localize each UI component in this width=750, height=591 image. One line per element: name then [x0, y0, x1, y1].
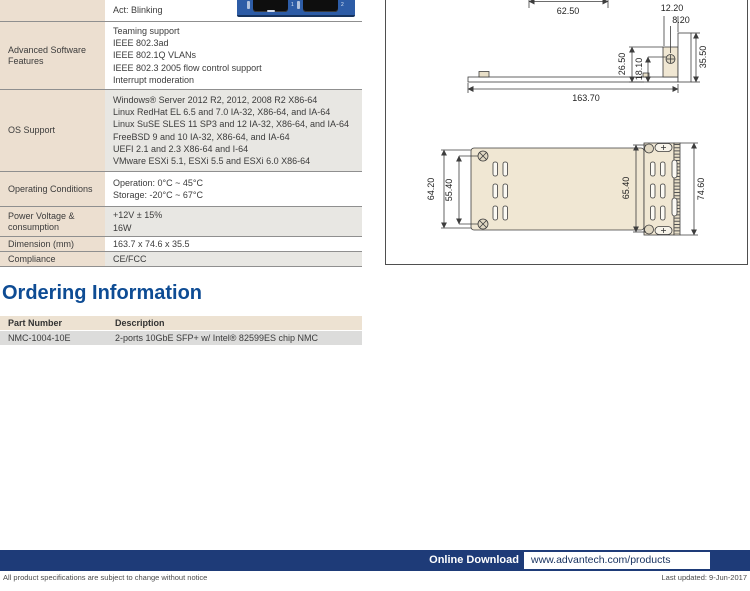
spec-line: VMware ESXi 5.1, ESXi 5.5 and ESXi 6.0 X…	[113, 155, 358, 167]
spec-line: IEEE 802.3ad	[113, 37, 358, 49]
metal-glint	[267, 10, 275, 12]
dimension-drawing-panel: 62.50 12.20 8.20 26.50 18.10 35.50 163.7…	[385, 0, 748, 265]
product-photo-sfp-faceplate: 1 2	[237, 0, 355, 17]
dim-35-50: 35.50	[698, 46, 708, 69]
spec-label-compliance: Compliance	[0, 252, 105, 266]
spec-line: IEEE 802.1Q VLANs	[113, 49, 358, 61]
table-row: Advanced Software Features Teaming suppo…	[0, 22, 362, 90]
dim-18-10: 18.10	[634, 58, 644, 81]
spec-line: Teaming support	[113, 25, 358, 37]
dim-55-40: 55.40	[444, 179, 454, 202]
spec-label-advanced-software: Advanced Software Features	[0, 22, 105, 89]
table-row: NMC-1004-10E 2-ports 10GbE SFP+ w/ Intel…	[0, 331, 362, 345]
dim-64-20: 64.20	[426, 178, 436, 201]
disclaimer-text: All product specifications are subject t…	[3, 573, 207, 582]
spec-value-os-support: Windows® Server 2012 R2, 2012, 2008 R2 X…	[105, 90, 362, 171]
dim-12-20: 12.20	[661, 3, 684, 13]
spec-label-operating-conditions: Operating Conditions	[0, 172, 105, 206]
spec-value-dimension: 163.7 x 74.6 x 35.5	[105, 237, 362, 251]
spec-value-advanced-software: Teaming support IEEE 802.3ad IEEE 802.1Q…	[105, 22, 362, 89]
spec-value-power: +12V ± 15% 16W	[105, 207, 362, 236]
mechanical-drawings: 62.50 12.20 8.20 26.50 18.10 35.50 163.7…	[386, 0, 746, 262]
ordering-information-heading: Ordering Information	[2, 282, 202, 305]
dim-62-50: 62.50	[557, 6, 580, 16]
table-row: Compliance CE/FCC	[0, 252, 362, 267]
table-row: Dimension (mm) 163.7 x 74.6 x 35.5	[0, 237, 362, 252]
spec-line: UEFI 2.1 and 2.3 X86-64 and I-64	[113, 143, 358, 155]
spec-label-dimension: Dimension (mm)	[0, 237, 105, 251]
table-row: Operating Conditions Operation: 0°C ~ 45…	[0, 172, 362, 207]
spec-label-power: Power Voltage & consumption	[0, 207, 105, 236]
table-row: OS Support Windows® Server 2012 R2, 2012…	[0, 90, 362, 172]
spec-line: Storage: -20°C ~ 67°C	[113, 189, 358, 201]
download-url-link[interactable]: www.advantech.com/products	[524, 552, 710, 569]
spec-line: Linux SuSE SLES 11 SP3 and 12 IA-32, X86…	[113, 118, 358, 130]
description-cell: 2-ports 10GbE SFP+ w/ Intel® 82599ES chi…	[110, 333, 362, 343]
sfp-cage-2	[303, 0, 338, 12]
dim-65-40: 65.40	[621, 177, 631, 200]
footer-bar: Online Download www.advantech.com/produc…	[0, 550, 750, 571]
spec-line: FreeBSD 9 and 10 IA-32, X86-64, and IA-6…	[113, 131, 358, 143]
spec-line: +12V ± 15%	[113, 209, 358, 221]
spec-line: Interrupt moderation	[113, 74, 358, 86]
column-header-description: Description	[110, 318, 362, 328]
spec-line: IEEE 802.3 2005 flow control support	[113, 62, 358, 74]
spec-line: 16W	[113, 222, 358, 234]
side-view-drawing	[468, 0, 700, 93]
top-view-drawing	[441, 143, 698, 235]
spec-value-compliance: CE/FCC	[105, 252, 362, 266]
dim-163-70: 163.70	[572, 93, 600, 103]
ordering-table-header: Part Number Description	[0, 316, 362, 331]
spec-line: Windows® Server 2012 R2, 2012, 2008 R2 X…	[113, 94, 358, 106]
port-label-sticker	[247, 1, 250, 9]
port-number-1: 1	[291, 2, 294, 8]
spec-label-led	[0, 0, 105, 21]
specification-table: Act: Blinking Advanced Software Features…	[0, 0, 362, 267]
port-number-2: 2	[341, 2, 344, 8]
column-header-part-number: Part Number	[0, 318, 110, 328]
spec-label-os-support: OS Support	[0, 90, 105, 171]
online-download-label: Online Download	[429, 550, 519, 571]
part-number-cell: NMC-1004-10E	[0, 333, 110, 343]
spec-value-operating-conditions: Operation: 0°C ~ 45°C Storage: -20°C ~ 6…	[105, 172, 362, 206]
spec-line: Operation: 0°C ~ 45°C	[113, 177, 358, 189]
spec-line: CE/FCC	[113, 253, 358, 265]
table-row: Power Voltage & consumption +12V ± 15% 1…	[0, 207, 362, 237]
dim-74-60: 74.60	[696, 178, 706, 201]
spec-line: 163.7 x 74.6 x 35.5	[113, 238, 358, 250]
spec-line: Linux RedHat EL 6.5 and 7.0 IA-32, X86-6…	[113, 106, 358, 118]
dim-26-50: 26.50	[617, 53, 627, 76]
last-updated-text: Last updated: 9-Jun-2017	[662, 573, 747, 582]
dim-8-20: 8.20	[672, 15, 690, 25]
port-label-sticker	[297, 1, 300, 9]
ordering-table: Part Number Description NMC-1004-10E 2-p…	[0, 316, 362, 345]
